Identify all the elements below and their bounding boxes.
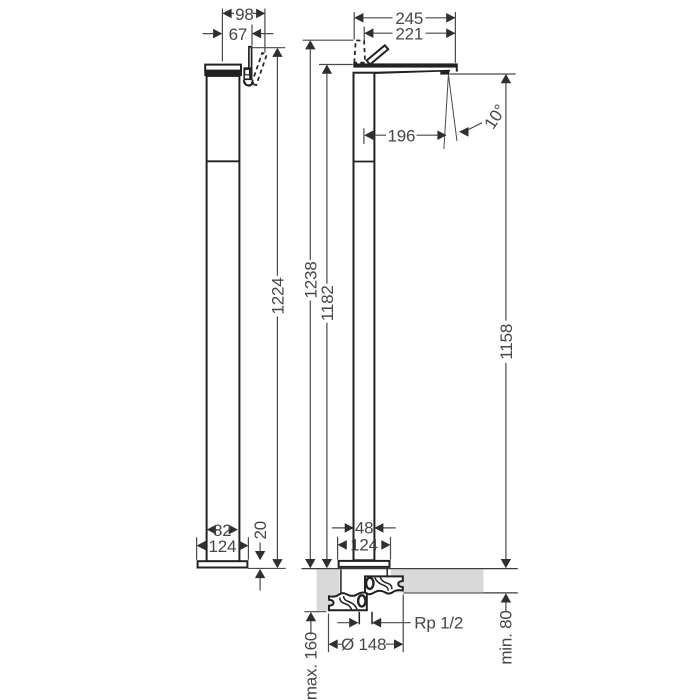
svg-text:20: 20 [251,521,270,540]
svg-text:196: 196 [388,127,416,146]
svg-text:Rp 1/2: Rp 1/2 [414,614,463,633]
svg-text:124: 124 [350,536,378,555]
svg-text:221: 221 [395,25,423,44]
svg-text:Ø 148: Ø 148 [341,635,386,654]
svg-text:1224: 1224 [268,277,287,314]
svg-text:min. 80: min. 80 [497,610,516,664]
svg-text:98: 98 [235,5,254,24]
svg-text:max. 160: max. 160 [302,632,321,700]
svg-text:1158: 1158 [497,324,516,360]
svg-text:67: 67 [229,25,248,44]
svg-text:1182: 1182 [318,285,337,321]
svg-text:124: 124 [209,537,237,556]
